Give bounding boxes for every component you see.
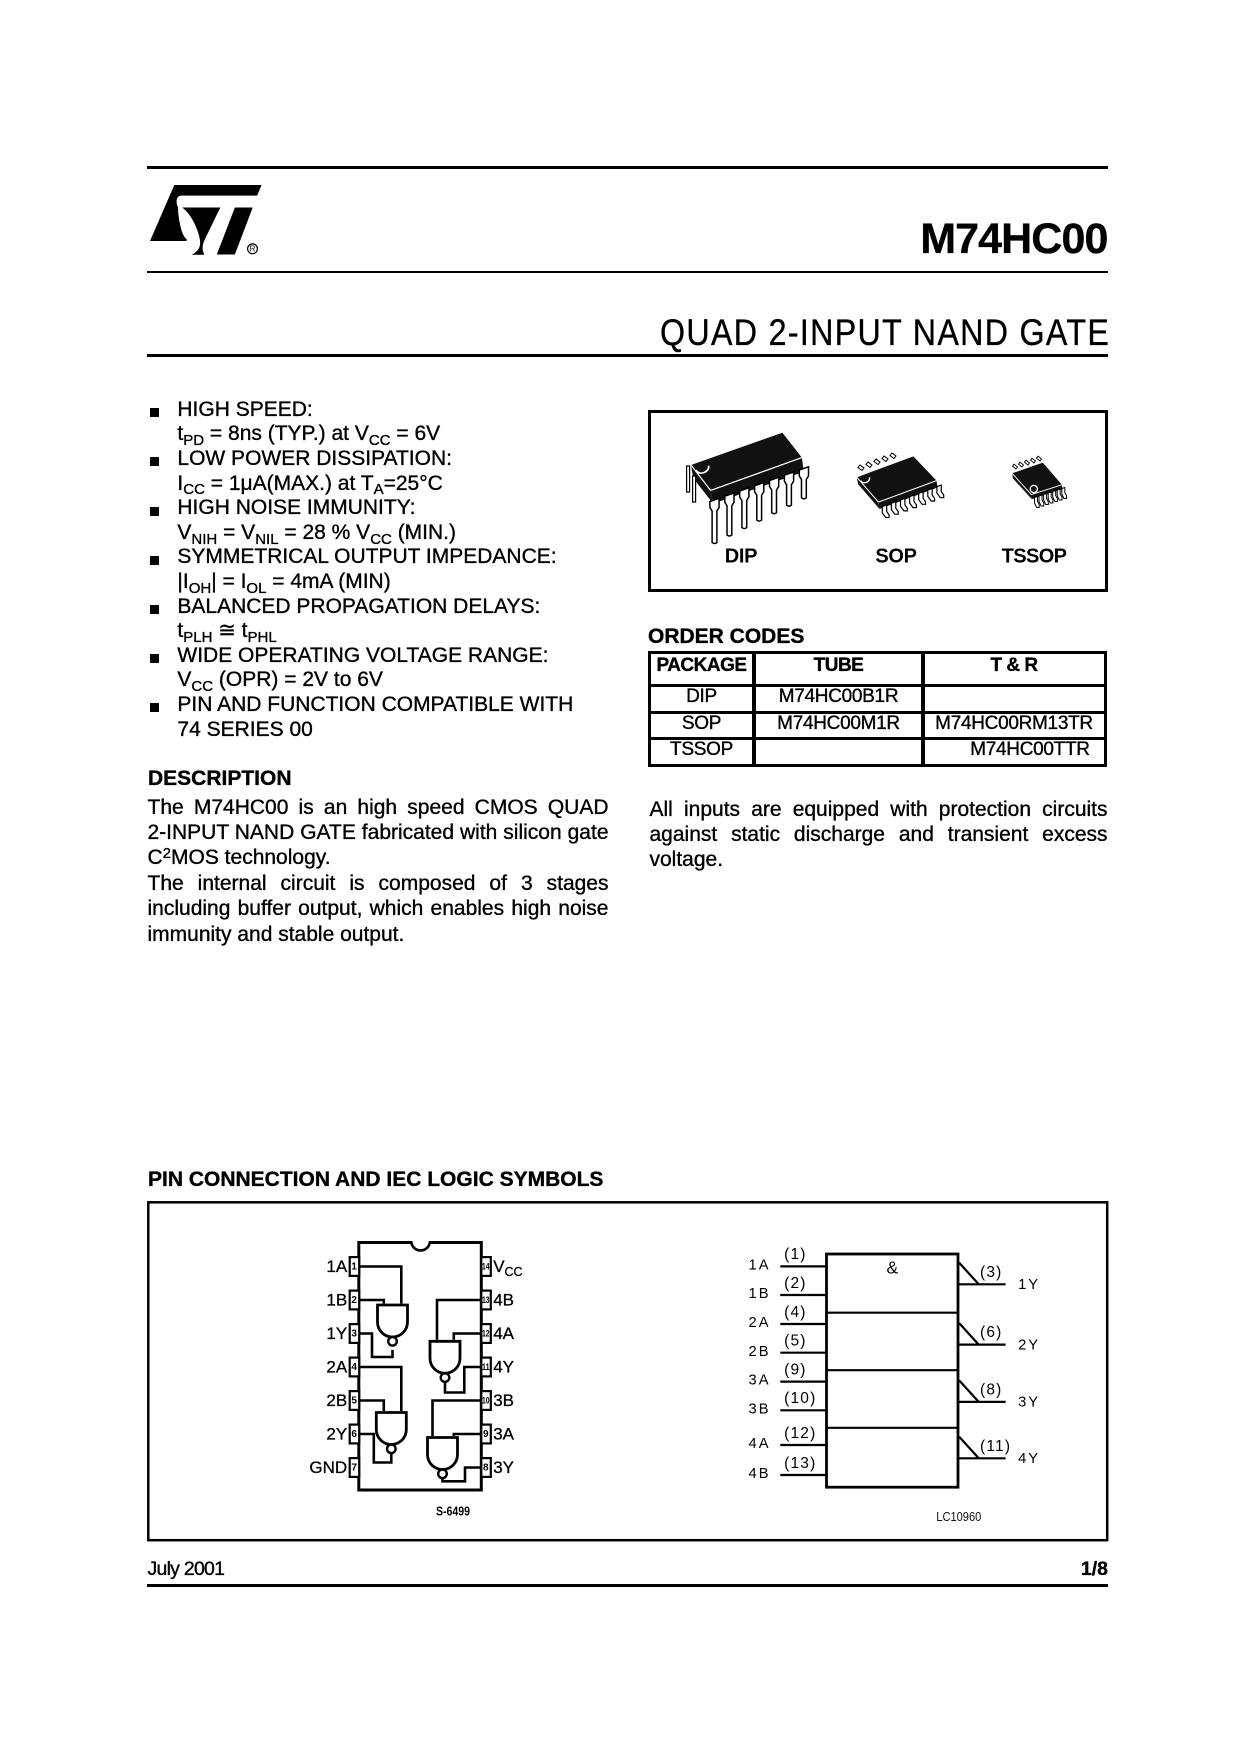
- svg-text:14: 14: [482, 1262, 490, 1272]
- svg-text:(11): (11): [980, 1438, 1011, 1455]
- svg-text:(13): (13): [784, 1455, 816, 1472]
- svg-text:1B: 1B: [749, 1286, 771, 1302]
- svg-text:4A: 4A: [493, 1324, 514, 1343]
- svg-text:10: 10: [482, 1396, 490, 1406]
- svg-text:7: 7: [351, 1463, 357, 1474]
- svg-text:(12): (12): [784, 1425, 816, 1442]
- svg-text:13: 13: [482, 1295, 490, 1305]
- svg-text:4Y: 4Y: [1018, 1451, 1040, 1467]
- svg-text:11: 11: [482, 1362, 490, 1372]
- svg-text:8: 8: [483, 1463, 489, 1474]
- svg-text:4: 4: [351, 1362, 357, 1373]
- svg-text:SOP: SOP: [875, 546, 916, 568]
- svg-text:2Y: 2Y: [326, 1425, 347, 1444]
- svg-text:1Y: 1Y: [1018, 1277, 1040, 1293]
- svg-text:GND: GND: [309, 1458, 347, 1477]
- svg-text:2Y: 2Y: [1018, 1337, 1040, 1353]
- svg-text:3A: 3A: [749, 1373, 771, 1389]
- svg-text:(9): (9): [784, 1361, 807, 1378]
- svg-text:R: R: [250, 245, 256, 254]
- svg-text:(10): (10): [784, 1390, 816, 1407]
- svg-text:4B: 4B: [493, 1291, 514, 1310]
- svg-text:1A: 1A: [749, 1258, 771, 1274]
- svg-text:TSSOP: TSSOP: [1002, 546, 1067, 568]
- svg-text:S-6499: S-6499: [436, 1504, 470, 1518]
- svg-text:9: 9: [483, 1429, 489, 1440]
- svg-text:2A: 2A: [749, 1315, 771, 1331]
- svg-text:5: 5: [351, 1396, 357, 1407]
- svg-text:(6): (6): [980, 1324, 1003, 1341]
- svg-text:VCC: VCC: [493, 1257, 522, 1279]
- svg-text:2B: 2B: [749, 1344, 771, 1360]
- svg-text:LC10960: LC10960: [936, 1510, 981, 1524]
- svg-text:(4): (4): [784, 1304, 807, 1321]
- svg-text:3B: 3B: [749, 1401, 771, 1417]
- svg-text:3Y: 3Y: [1018, 1395, 1040, 1411]
- svg-text:4A: 4A: [749, 1436, 771, 1452]
- svg-text:(8): (8): [980, 1381, 1003, 1398]
- svg-text:3Y: 3Y: [493, 1458, 514, 1477]
- svg-text:&: &: [886, 1257, 898, 1277]
- svg-text:12: 12: [482, 1329, 490, 1339]
- svg-text:3: 3: [351, 1329, 357, 1340]
- svg-text:DIP: DIP: [725, 546, 757, 568]
- svg-text:1: 1: [351, 1262, 357, 1273]
- svg-text:1A: 1A: [326, 1257, 347, 1276]
- svg-text:2B: 2B: [326, 1391, 347, 1410]
- svg-text:3B: 3B: [493, 1391, 514, 1410]
- svg-text:1Y: 1Y: [326, 1324, 347, 1343]
- svg-text:6: 6: [351, 1429, 357, 1440]
- svg-text:2A: 2A: [326, 1358, 347, 1377]
- svg-text:2: 2: [351, 1295, 357, 1306]
- svg-text:3A: 3A: [493, 1425, 514, 1444]
- svg-text:(1): (1): [784, 1246, 807, 1263]
- svg-text:(3): (3): [980, 1264, 1003, 1281]
- svg-text:4B: 4B: [749, 1466, 771, 1482]
- svg-text:(5): (5): [784, 1333, 807, 1350]
- svg-text:(2): (2): [784, 1275, 807, 1292]
- svg-text:4Y: 4Y: [493, 1358, 514, 1377]
- svg-text:1B: 1B: [326, 1291, 347, 1310]
